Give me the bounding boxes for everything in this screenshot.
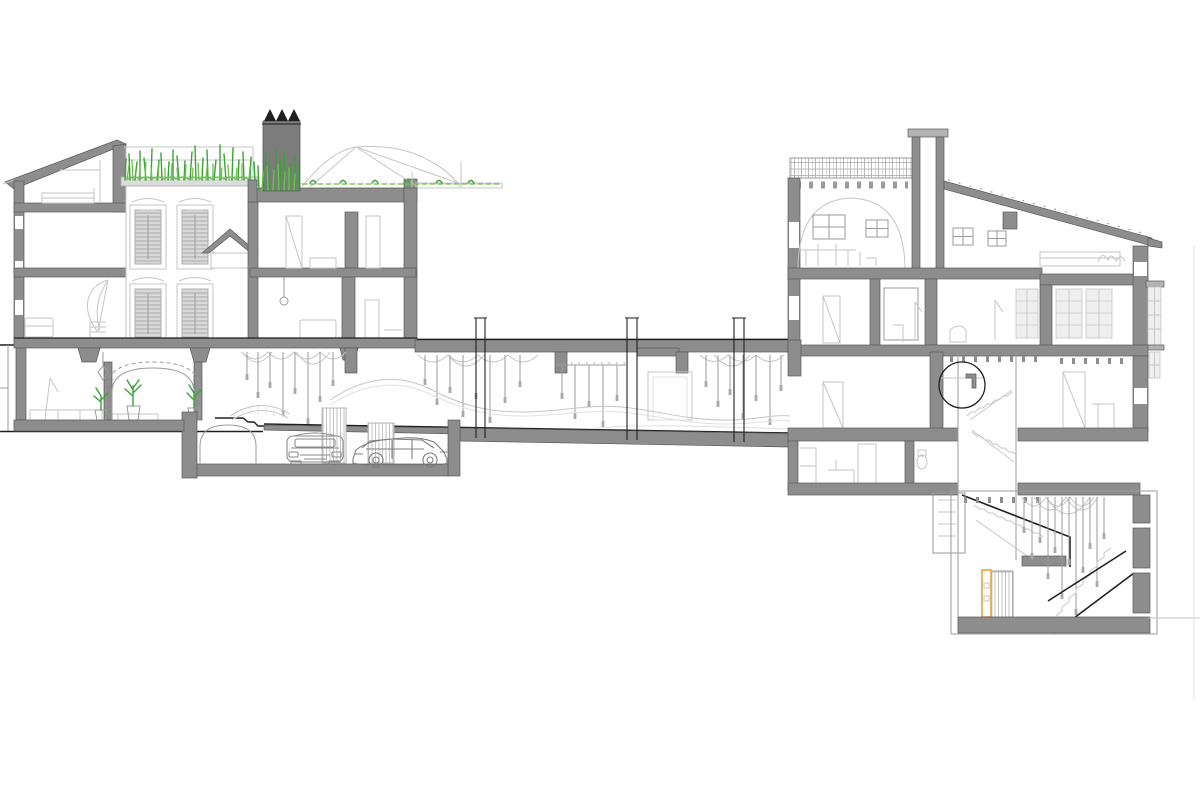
car-side: [353, 438, 448, 467]
left-building-right-section: [248, 109, 502, 340]
window: [866, 220, 888, 237]
garage-door: [368, 423, 394, 463]
spiral-stair: [87, 280, 108, 338]
gallery-wing: [215, 318, 790, 447]
swag-garlands: [242, 352, 784, 366]
arched-ground-room: [30, 352, 201, 420]
tiled-roof: [790, 158, 912, 185]
bay-window: [1146, 281, 1164, 378]
french-window: [1016, 289, 1038, 338]
window: [988, 231, 1006, 246]
bench: [30, 410, 80, 420]
french-window: [1056, 289, 1082, 338]
facade-window: [130, 278, 166, 345]
facade-window: [130, 199, 166, 270]
detail-circle: [939, 362, 985, 408]
lower-rooms: [788, 441, 958, 495]
street-facade: [121, 145, 258, 344]
dining-sketch: [800, 244, 876, 266]
section-drawing-canvas: [0, 0, 1200, 809]
facade-window: [177, 199, 213, 270]
roof-garden-grasses: [125, 145, 255, 180]
second-floor: [788, 246, 1148, 346]
orange-door: [982, 570, 1013, 617]
tower: [908, 129, 948, 276]
sofa: [25, 318, 53, 337]
window: [813, 215, 845, 239]
right-building: [788, 129, 1164, 495]
window: [953, 228, 973, 245]
section-drawing: [0, 0, 1200, 809]
facade-window: [177, 278, 213, 345]
undulating-ramp: [330, 379, 790, 429]
upper-room: [286, 216, 380, 268]
loft-furniture: [1040, 252, 1125, 266]
french-window: [1086, 289, 1112, 338]
terrace-shrubs: [302, 181, 502, 189]
toilet: [917, 450, 927, 469]
mid-room: [280, 277, 402, 338]
sloped-roof: [944, 180, 1162, 248]
